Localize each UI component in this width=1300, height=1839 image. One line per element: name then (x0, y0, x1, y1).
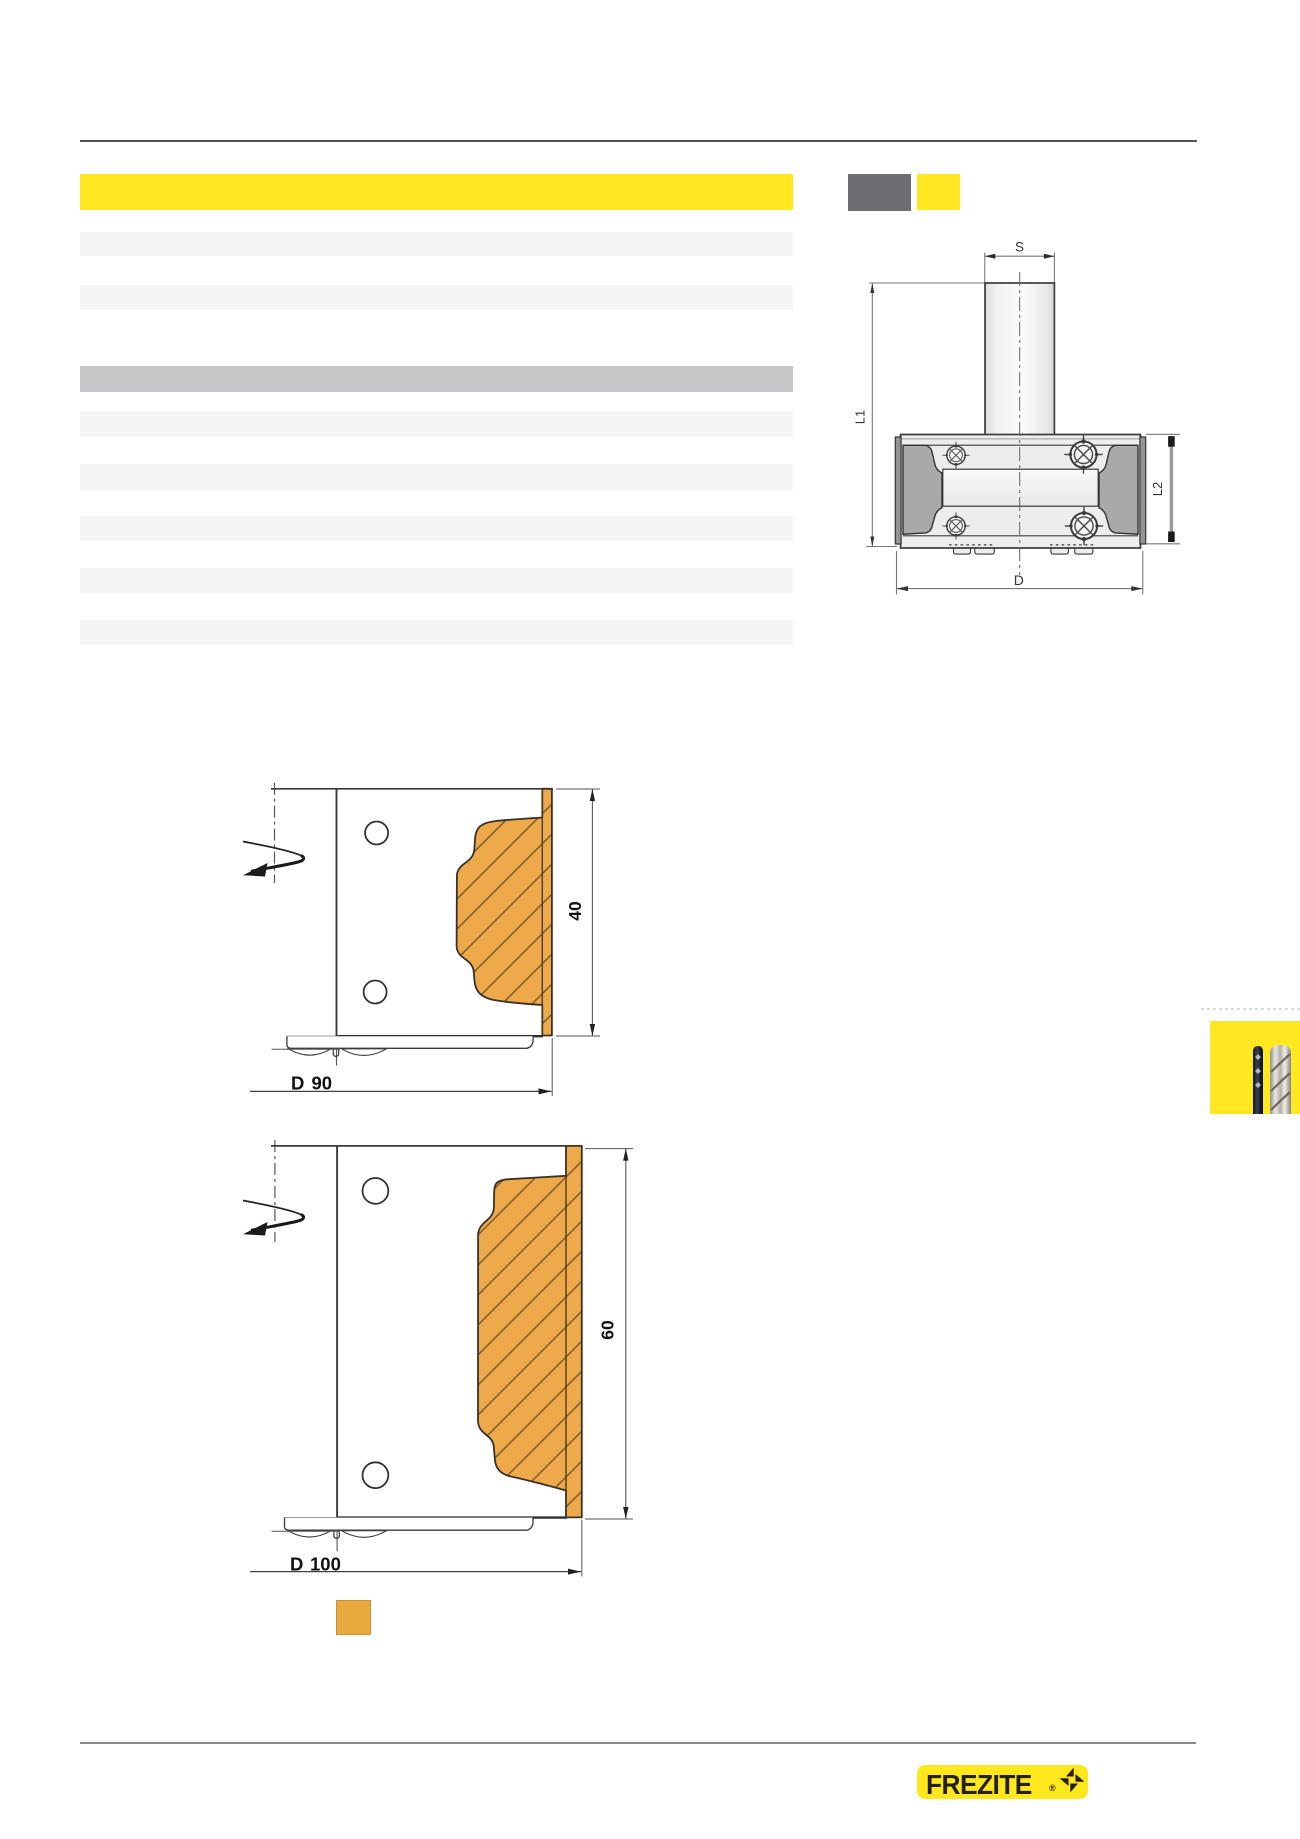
svg-text:L2: L2 (1150, 482, 1165, 496)
svg-text:D: D (1014, 572, 1024, 588)
svg-text:40: 40 (565, 901, 585, 921)
svg-text:60: 60 (598, 1320, 618, 1340)
svg-text:L1: L1 (855, 410, 868, 424)
svg-text:S: S (1015, 240, 1024, 255)
svg-text:D: D (291, 1072, 304, 1093)
svg-text:90: 90 (312, 1072, 333, 1093)
